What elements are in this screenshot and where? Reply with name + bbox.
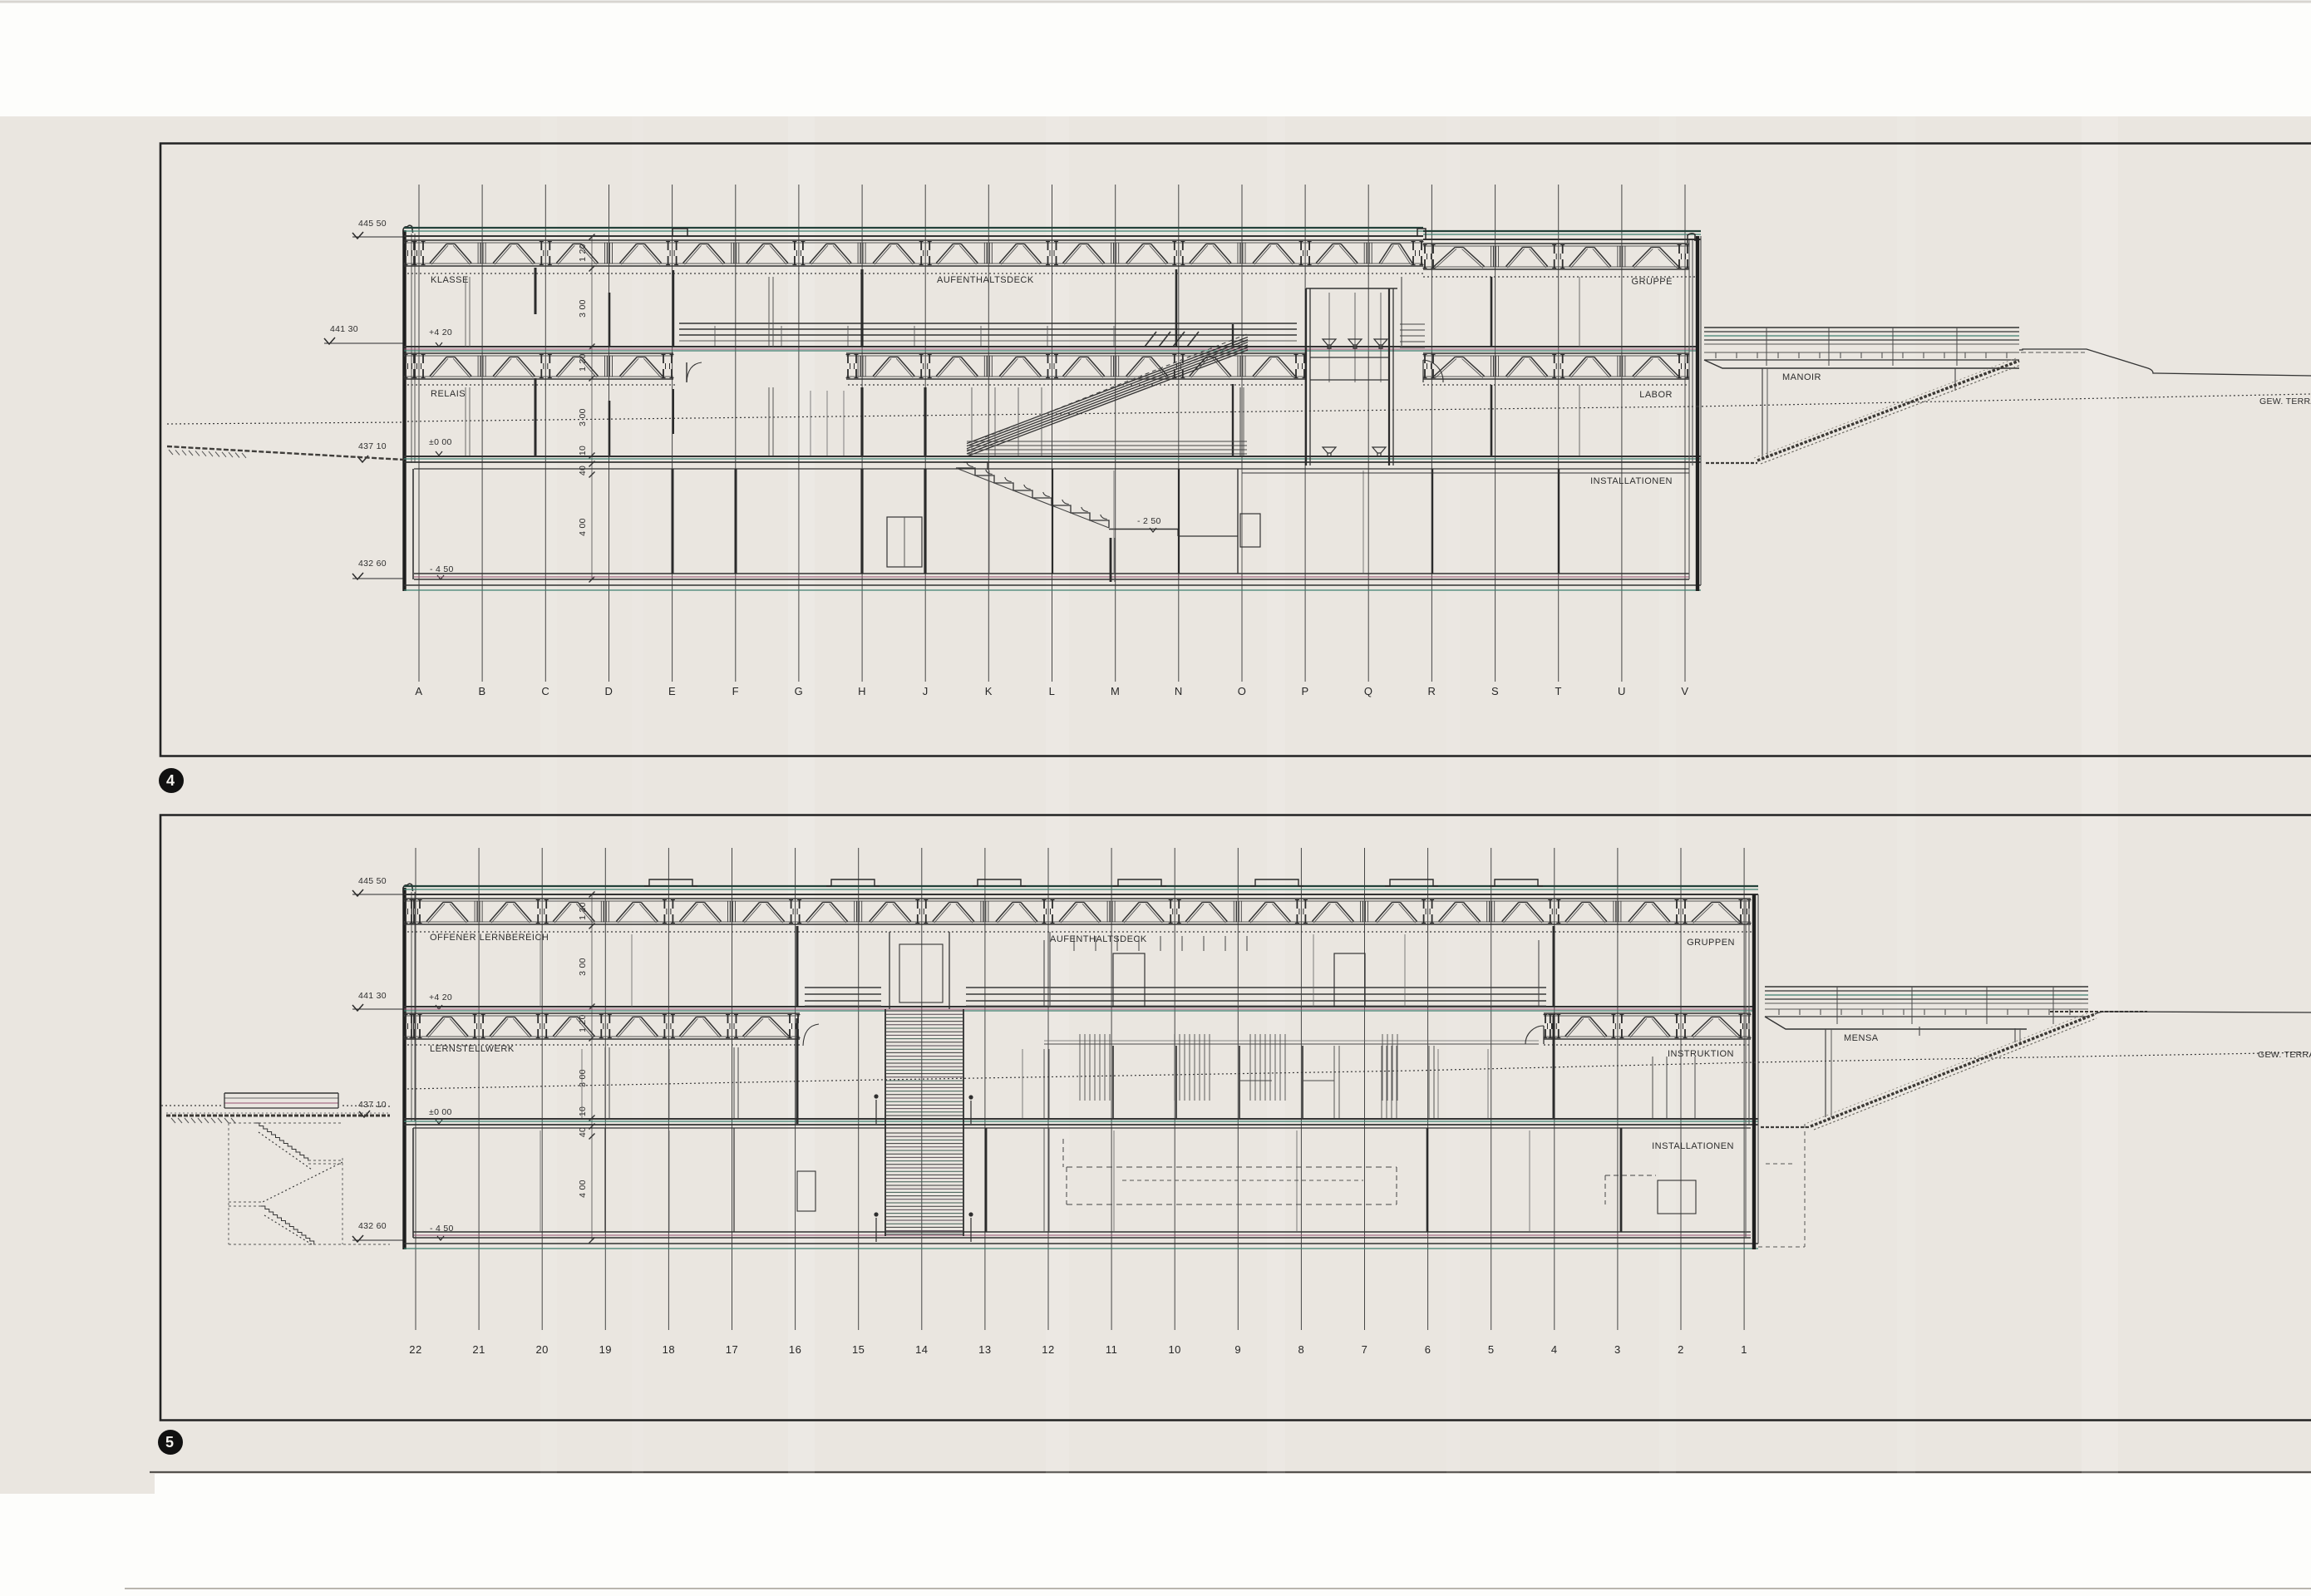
svg-text:+4 20: +4 20	[429, 993, 452, 1002]
svg-text:B: B	[479, 685, 486, 697]
svg-text:RELAIS: RELAIS	[431, 389, 466, 399]
svg-text:11: 11	[1106, 1343, 1118, 1356]
svg-text:C: C	[541, 685, 549, 697]
svg-text:MANOIR: MANOIR	[1782, 372, 1821, 382]
svg-text:AUFENTHALTSDECK: AUFENTHALTSDECK	[937, 275, 1034, 285]
svg-text:20: 20	[535, 1343, 548, 1356]
svg-text:M: M	[1111, 685, 1120, 697]
svg-text:5: 5	[1488, 1343, 1495, 1356]
svg-text:15: 15	[852, 1343, 865, 1356]
svg-text:8: 8	[1298, 1343, 1305, 1356]
svg-text:437 10: 437 10	[358, 441, 387, 451]
svg-text:1: 1	[1741, 1343, 1747, 1356]
svg-text:U: U	[1618, 685, 1626, 697]
svg-text:F: F	[732, 685, 739, 697]
svg-text:S: S	[1491, 685, 1499, 697]
svg-text:21: 21	[472, 1343, 485, 1356]
svg-text:3 00: 3 00	[578, 408, 588, 426]
svg-text:GEW. TERRA: GEW. TERRA	[2258, 1050, 2311, 1060]
svg-text:19: 19	[599, 1343, 612, 1356]
svg-text:MENSA: MENSA	[1844, 1033, 1879, 1043]
svg-text:GEW. TERRA: GEW. TERRA	[2259, 397, 2311, 406]
svg-text:432 60: 432 60	[358, 559, 387, 569]
svg-text:10: 10	[578, 1106, 588, 1116]
svg-text:40: 40	[578, 465, 588, 475]
svg-text:12: 12	[1042, 1343, 1054, 1356]
svg-text:5: 5	[165, 1434, 174, 1451]
svg-text:A: A	[415, 685, 422, 697]
svg-text:KLASSE: KLASSE	[431, 275, 469, 285]
svg-text:445 50: 445 50	[358, 876, 387, 886]
svg-text:432 60: 432 60	[358, 1221, 387, 1231]
svg-text:LABOR: LABOR	[1639, 390, 1673, 400]
svg-text:GRUPPEN: GRUPPEN	[1687, 938, 1735, 948]
svg-text:4 00: 4 00	[578, 518, 588, 536]
svg-text:P: P	[1302, 685, 1309, 697]
svg-text:- 2 50: - 2 50	[1137, 516, 1161, 526]
svg-text:3: 3	[1614, 1343, 1621, 1356]
svg-text:437 10: 437 10	[358, 1100, 387, 1110]
svg-text:+4 20: +4 20	[429, 328, 452, 337]
svg-text:T: T	[1555, 685, 1561, 697]
svg-text:7: 7	[1362, 1343, 1368, 1356]
svg-text:L: L	[1049, 685, 1056, 697]
svg-text:9: 9	[1234, 1343, 1241, 1356]
svg-text:10: 10	[578, 446, 588, 456]
svg-text:10: 10	[1168, 1343, 1180, 1356]
svg-text:441 30: 441 30	[358, 991, 387, 1001]
svg-text:INSTALLATIONEN: INSTALLATIONEN	[1652, 1141, 1734, 1151]
svg-text:K: K	[985, 685, 993, 697]
svg-text:G: G	[795, 685, 804, 697]
svg-text:4: 4	[1551, 1343, 1558, 1356]
svg-text:14: 14	[915, 1343, 928, 1356]
svg-text:4 00: 4 00	[578, 1180, 588, 1198]
svg-text:V: V	[1681, 685, 1688, 697]
svg-text:D: D	[605, 685, 613, 697]
svg-text:4: 4	[166, 772, 175, 789]
svg-text:±0 00: ±0 00	[429, 437, 452, 447]
svg-text:H: H	[858, 685, 866, 697]
svg-text:- 4 50: - 4 50	[430, 564, 454, 574]
svg-text:6: 6	[1425, 1343, 1431, 1356]
svg-text:INSTRUKTION: INSTRUKTION	[1668, 1049, 1734, 1059]
svg-text:3 00: 3 00	[578, 958, 588, 976]
svg-text:INSTALLATIONEN: INSTALLATIONEN	[1590, 476, 1673, 486]
svg-text:40: 40	[578, 1127, 588, 1137]
svg-text:LERNSTELLWERK: LERNSTELLWERK	[430, 1044, 515, 1054]
svg-text:445 50: 445 50	[358, 219, 387, 229]
svg-text:N: N	[1175, 685, 1183, 697]
svg-text:13: 13	[978, 1343, 991, 1356]
svg-text:GRUPPE: GRUPPE	[1632, 277, 1673, 287]
svg-text:18: 18	[663, 1343, 675, 1356]
svg-text:22: 22	[409, 1343, 421, 1356]
svg-text:441 30: 441 30	[330, 324, 358, 334]
svg-text:AUFENTHALTSDECK: AUFENTHALTSDECK	[1050, 934, 1147, 944]
svg-text:OFFENER LERNBEREICH: OFFENER LERNBEREICH	[430, 933, 549, 943]
svg-text:J: J	[923, 685, 929, 697]
svg-text:2: 2	[1678, 1343, 1684, 1356]
svg-text:Q: Q	[1364, 685, 1373, 697]
svg-text:3 00: 3 00	[578, 299, 588, 318]
svg-text:±0 00: ±0 00	[429, 1107, 452, 1117]
svg-text:17: 17	[726, 1343, 738, 1356]
svg-text:O: O	[1238, 685, 1247, 697]
svg-text:R: R	[1427, 685, 1436, 697]
svg-text:E: E	[668, 685, 676, 697]
svg-text:3 00: 3 00	[578, 1069, 588, 1087]
svg-text:16: 16	[789, 1343, 801, 1356]
